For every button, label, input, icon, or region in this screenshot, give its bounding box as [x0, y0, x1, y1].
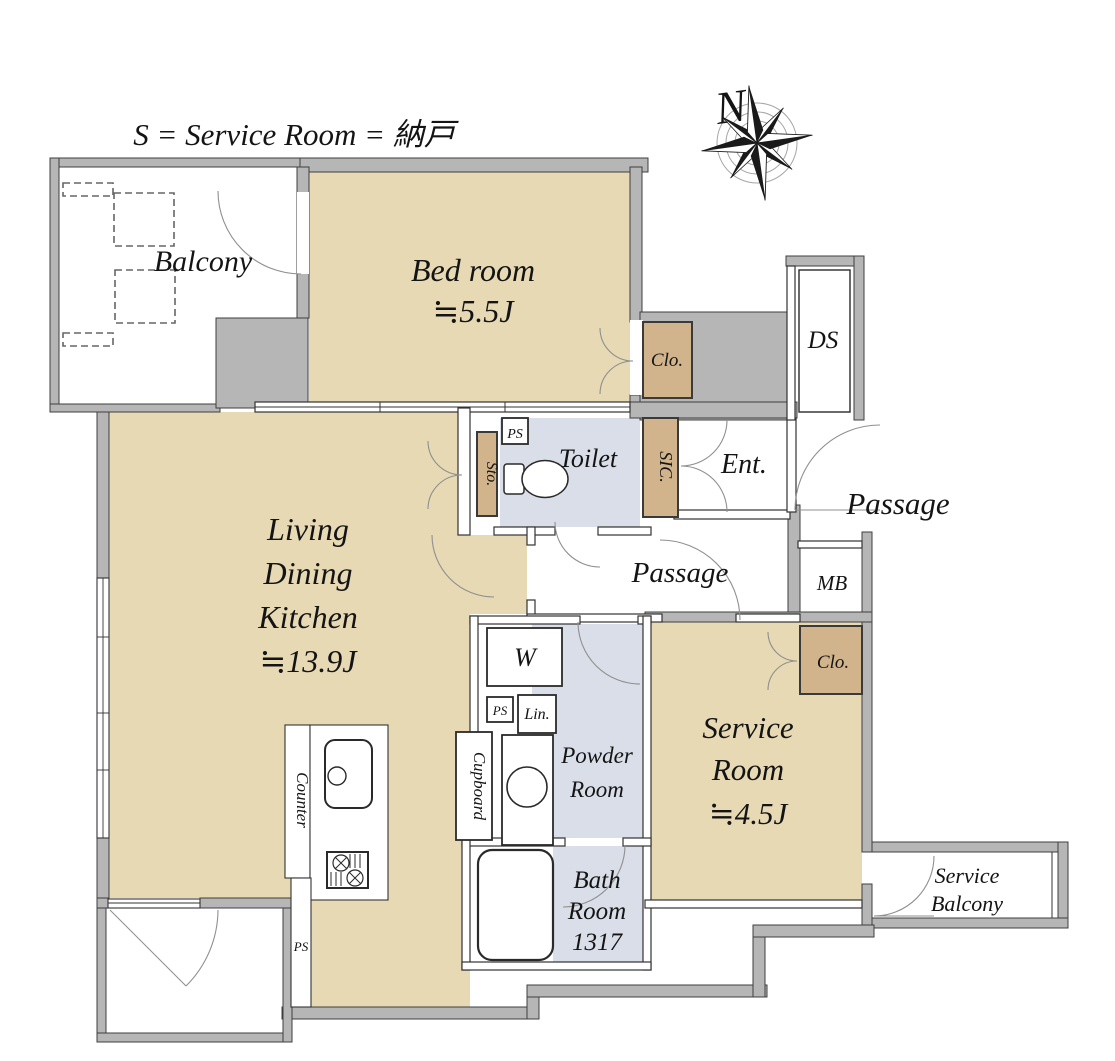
bath-room-label-line2: Room	[567, 898, 626, 925]
wall-porch-bottom	[97, 1033, 292, 1042]
bedroom-area: ≒5.5J	[432, 293, 515, 329]
inner-passage-label: Passage	[631, 557, 729, 589]
balcony-label: Balcony	[154, 245, 253, 278]
partition-bath-left	[462, 838, 470, 970]
wall-svc-balcony-right	[1058, 842, 1068, 928]
service-balcony-label-line2: Balcony	[931, 891, 1003, 916]
partition-service-bottom	[645, 900, 862, 908]
washer-label: W	[514, 643, 538, 672]
wall-balcony-bottom	[50, 404, 220, 412]
partition-toilet-left	[458, 408, 470, 535]
wall-svc-balcony-bottom	[872, 918, 1068, 928]
service-room-label-line1: Service	[702, 710, 793, 745]
service-closet-label: Clo.	[817, 652, 849, 673]
meter-box-label: MB	[816, 571, 847, 595]
wall-entrance-top	[630, 402, 797, 418]
floor-plan: N S = Service Room = 納戸 Balcony Bed room…	[0, 0, 1115, 1061]
partition-mb-top	[798, 541, 862, 548]
partition-powder-top-a	[470, 616, 580, 624]
wall-ds-top	[786, 256, 864, 266]
powder-room-label-line1: Powder	[560, 743, 634, 768]
linen-label: Lin.	[523, 706, 549, 723]
partition-toilet-bottom-a	[494, 527, 555, 535]
gap-balcony-door	[297, 192, 309, 274]
bedroom-closet-label: Clo.	[651, 350, 683, 371]
counter-label: Counter	[293, 772, 312, 828]
wall-balcony-corner-mass	[216, 318, 308, 408]
rear-corridor-floor-2	[651, 908, 753, 985]
partition-bath-bottom	[462, 962, 651, 970]
ldk-label-line1: Living	[266, 511, 349, 547]
cupboard-label: Cupboard	[470, 752, 489, 821]
wall-bedroom-top	[300, 158, 648, 172]
bath-room-size: 1317	[572, 929, 624, 956]
wall-entrance-right-low	[788, 505, 800, 622]
bedroom-label: Bed room	[411, 252, 535, 288]
partition-passage-bottom-b	[736, 614, 800, 622]
partition-bath-top-b	[623, 838, 651, 846]
wall-ldk-left-lower	[97, 838, 109, 898]
service-balcony-label-line1: Service	[935, 863, 1000, 888]
wall-unit-right	[862, 532, 872, 852]
pipe-space-label-bottom: PS	[293, 939, 309, 954]
ldk-area: ≒13.9J	[259, 643, 358, 679]
pipe-space-label-toilet: PS	[506, 427, 523, 442]
duct-space-label: DS	[807, 327, 839, 354]
partition-passage-left-a	[527, 527, 535, 545]
wall-bottom-2	[527, 985, 767, 997]
wall-porch-top-right	[200, 898, 292, 908]
wall-balcony-left	[50, 158, 59, 412]
wall-bottom-3	[753, 925, 874, 937]
ldk-label-line3: Kitchen	[257, 599, 358, 635]
wall-bottom-1	[282, 1007, 539, 1019]
gap-bedroom-closet-door	[630, 320, 643, 395]
wall-ds-right	[854, 256, 864, 420]
bathtub	[478, 850, 553, 960]
stove	[327, 852, 368, 888]
wall-balcony-top	[50, 158, 308, 167]
pipe-space-label-mid: PS	[492, 703, 508, 718]
partition-toilet-bottom-b	[598, 527, 651, 535]
below-bath-floor-2	[470, 985, 527, 1007]
legend-text: S = Service Room = 納戸	[133, 117, 460, 152]
sic-label: SIC.	[656, 451, 676, 483]
service-room-area: ≒4.5J	[709, 796, 789, 831]
wall-svc-balcony-left	[862, 884, 872, 928]
wall-ldk-left-upper	[97, 412, 109, 578]
storage-label: Sto.	[483, 462, 500, 486]
sink-faucet	[328, 767, 346, 785]
window-porch-top	[108, 899, 200, 908]
partition-service-left	[643, 616, 651, 970]
toilet-label: Toilet	[559, 444, 618, 473]
bath-room-label-line1: Bath	[573, 867, 620, 894]
porch-floor	[106, 906, 283, 1033]
wall-svc-balcony-top	[872, 842, 1068, 852]
toilet-tank	[504, 464, 524, 494]
partition-entrance-bottom	[674, 510, 790, 519]
wall-porch-top-left	[97, 898, 108, 908]
wall-porch-left	[97, 898, 106, 1042]
service-room-label-line2: Room	[711, 752, 784, 787]
outer-passage-label: Passage	[845, 486, 950, 521]
partition-entrance-right	[787, 418, 796, 512]
bedroom-floor	[309, 172, 630, 404]
floor-plan-svg: N S = Service Room = 納戸 Balcony Bed room…	[0, 0, 1115, 1061]
entrance-label: Ent.	[720, 449, 767, 480]
ldk-label-line2: Dining	[263, 555, 353, 591]
powder-room-label-line2: Room	[569, 777, 624, 802]
partition-ds-left	[787, 266, 795, 420]
washbasin-bowl	[507, 767, 547, 807]
wall-bedroom-right-upper	[630, 167, 642, 322]
